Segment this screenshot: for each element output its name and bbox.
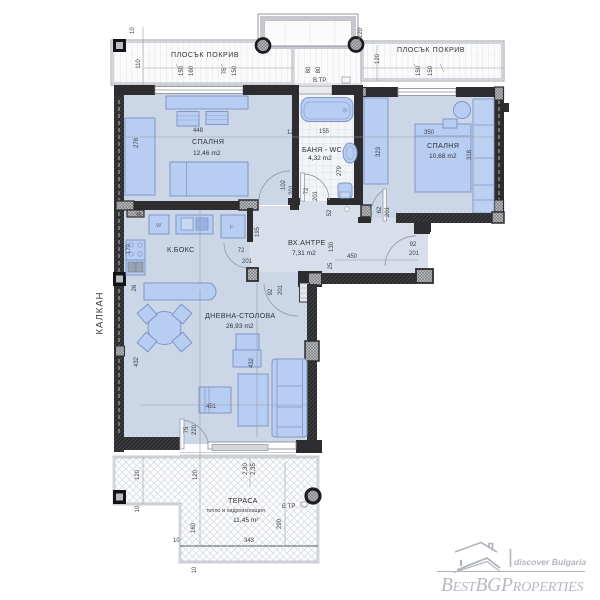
svg-text:448: 448 [193,128,204,134]
svg-text:7,31 m2: 7,31 m2 [292,250,316,257]
svg-text:201: 201 [409,251,420,257]
svg-text:170: 170 [126,243,132,254]
svg-text:92: 92 [410,242,417,248]
svg-text:160: 160 [189,65,195,76]
svg-text:201: 201 [242,259,253,265]
svg-text:201: 201 [289,184,295,195]
svg-text:201: 201 [313,190,319,201]
svg-text:ДНЕВНА-СТОЛОВА: ДНЕВНА-СТОЛОВА [205,311,275,320]
svg-text:discover Bulgaria: discover Bulgaria [514,557,586,567]
svg-text:72: 72 [238,248,245,254]
svg-text:150: 150 [428,65,434,76]
svg-text:323: 323 [376,146,382,157]
svg-text:ПЛОСЪК ПОКРИВ: ПЛОСЪК ПОКРИВ [171,52,239,59]
svg-text:12: 12 [287,130,294,136]
svg-text:4,32 m2: 4,32 m2 [308,155,332,162]
svg-text:150: 150 [416,65,422,76]
svg-text:топло и хидроизолация: топло и хидроизолация [206,508,265,514]
svg-text:290: 290 [277,518,283,529]
svg-text:120: 120 [375,53,381,64]
svg-text:БАНЯ - WC: БАНЯ - WC [302,145,342,154]
svg-text:10: 10 [135,505,141,512]
svg-text:25: 25 [328,262,334,269]
svg-text:432: 432 [134,356,140,367]
svg-text:62: 62 [377,206,383,213]
svg-text:201: 201 [278,284,284,295]
svg-text:450: 450 [347,254,358,260]
svg-text:К.БОКС: К.БОКС [167,245,195,254]
svg-text:2,35: 2,35 [251,463,257,475]
svg-text:350: 350 [424,130,435,136]
svg-text:ВХ.АНТРЕ: ВХ.АНТРЕ [288,238,326,247]
svg-text:343: 343 [244,538,255,544]
svg-text:110: 110 [136,59,142,69]
svg-text:В.ТР: В.ТР [282,504,295,510]
svg-text:201: 201 [385,206,391,217]
svg-text:ТЕРАСА: ТЕРАСА [228,496,258,505]
svg-text:80: 80 [316,66,322,73]
svg-text:102: 102 [281,179,287,190]
svg-text:150: 150 [179,65,185,76]
svg-text:120: 120 [135,469,141,480]
svg-text:432: 432 [249,357,255,368]
svg-text:195: 195 [255,226,261,237]
svg-text:80: 80 [306,66,312,73]
svg-text:W: W [156,223,162,229]
svg-text:СПАЛНЯ: СПАЛНЯ [427,141,459,150]
svg-text:26,93 m2: 26,93 m2 [226,323,254,330]
svg-text:92: 92 [268,288,274,295]
svg-text:52: 52 [327,209,333,216]
svg-text:160: 160 [191,522,197,533]
svg-text:12,46 m2: 12,46 m2 [193,150,221,157]
svg-text:BestBGProperties: BestBGProperties [441,575,583,596]
svg-text:120: 120 [193,469,199,480]
svg-text:155: 155 [319,129,330,135]
svg-text:72: 72 [304,187,310,194]
svg-text:75: 75 [184,426,190,433]
svg-text:ПЛОСЪК ПОКРИВ: ПЛОСЪК ПОКРИВ [397,47,465,54]
svg-text:46: 46 [136,212,142,218]
svg-text:СПАЛНЯ: СПАЛНЯ [192,137,224,146]
svg-text:10: 10 [173,538,180,544]
svg-text:10: 10 [130,27,136,34]
svg-text:11,45 m²: 11,45 m² [233,517,259,524]
svg-text:КАЛКАН: КАЛКАН [95,291,106,334]
svg-text:220: 220 [192,424,198,435]
svg-text:26: 26 [132,284,138,291]
svg-text:278: 278 [134,137,140,148]
svg-text:150: 150 [232,65,238,76]
svg-text:В.ТР.: В.ТР. [313,78,327,84]
svg-text:130: 130 [329,241,335,252]
svg-text:279: 279 [337,165,343,176]
svg-text:10: 10 [192,566,198,573]
svg-text:2,30: 2,30 [243,463,249,475]
svg-text:318: 318 [467,149,473,160]
svg-text:10,68 m2: 10,68 m2 [429,153,457,160]
